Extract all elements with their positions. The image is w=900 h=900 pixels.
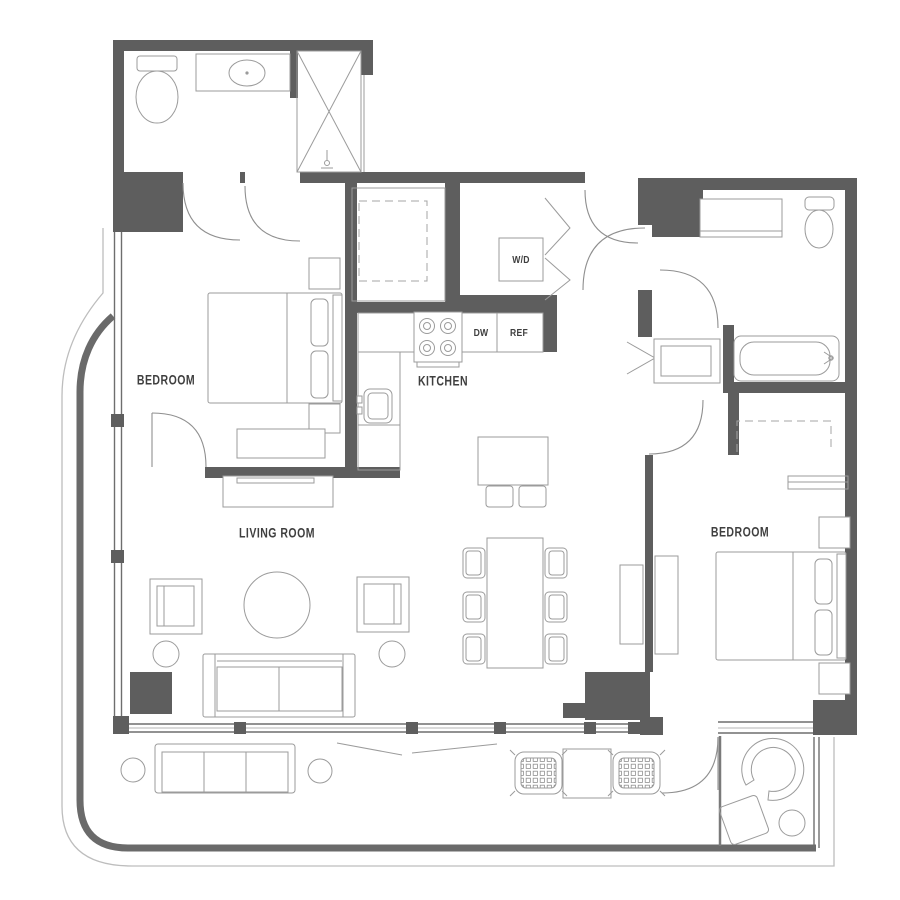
outdoor-side-table <box>779 810 805 836</box>
stool <box>519 486 546 507</box>
bed <box>208 293 342 403</box>
outdoor-sofa <box>155 744 295 793</box>
wicker-chair <box>608 750 665 796</box>
pillow <box>815 559 832 604</box>
side-table <box>153 641 179 667</box>
window-living-south <box>126 724 640 732</box>
label-washer-dryer: W/D <box>512 254 529 266</box>
dining-area <box>463 538 643 668</box>
door-arc-living <box>152 413 206 467</box>
bedroom-right <box>655 421 850 694</box>
tv-console <box>223 476 333 507</box>
outdoor-side-table <box>121 758 145 782</box>
toilet <box>136 71 178 123</box>
coffee-table <box>244 572 310 638</box>
stool <box>486 486 513 507</box>
side-table <box>379 641 405 667</box>
label-dishwasher: DW <box>474 327 489 339</box>
door-arc-bathroom-left <box>183 183 240 240</box>
sofa <box>203 654 355 717</box>
stove <box>414 312 462 367</box>
sideboard <box>620 565 643 644</box>
toilet-tank <box>137 56 177 71</box>
pillow <box>311 351 328 398</box>
bathroom-left <box>136 51 364 172</box>
lounge-chair <box>742 738 804 800</box>
door-arc-bedroom-right <box>649 400 703 454</box>
bathtub <box>734 336 839 381</box>
room-label-bedroom-left: BEDROOM <box>137 373 195 388</box>
wicker-chair <box>510 750 567 796</box>
dresser <box>655 556 678 654</box>
vanity-sink <box>654 339 720 383</box>
nightstand <box>309 258 340 289</box>
bifold-door <box>545 198 570 300</box>
kitchen-sink <box>357 389 392 423</box>
ottoman <box>718 794 769 845</box>
floor-plan: BEDROOM KITCHEN LIVING ROOM BEDROOM W/D … <box>0 0 900 900</box>
headboard <box>333 295 342 401</box>
door-arc-balcony <box>662 737 718 793</box>
kitchen-island <box>478 437 548 507</box>
room-label-kitchen: KITCHEN <box>418 374 468 389</box>
upper-cabinets <box>359 201 427 281</box>
living-room <box>150 476 409 717</box>
bed <box>716 552 846 660</box>
room-label-bedroom-right: BEDROOM <box>711 525 769 540</box>
label-refrigerator: REF <box>510 327 528 339</box>
door-arc-bathroom-right <box>660 270 718 328</box>
floor-plan-drawing <box>0 0 900 900</box>
window-bedroom-south <box>718 722 813 733</box>
room-label-living-room: LIVING ROOM <box>239 526 315 541</box>
toilet-tank <box>805 197 834 210</box>
door-arc-bedroom-left <box>245 186 300 241</box>
shower <box>297 51 364 172</box>
dining-table <box>487 538 543 668</box>
armchair <box>150 579 202 634</box>
pillow <box>815 610 832 655</box>
pantry-counter <box>352 188 445 301</box>
outdoor-side-table <box>308 759 332 783</box>
nightstand <box>819 517 850 548</box>
nightstand <box>819 663 850 694</box>
pillow <box>311 299 328 346</box>
toilet <box>805 210 833 248</box>
armchair <box>357 577 409 632</box>
sliding-door-indicators <box>337 743 497 755</box>
door-arc-hall <box>583 228 645 290</box>
window-left <box>115 232 122 716</box>
outdoor-table <box>563 749 611 798</box>
opening-chevron <box>627 342 655 374</box>
closet <box>737 421 848 489</box>
bench <box>237 429 325 458</box>
headboard <box>837 554 846 658</box>
bedroom-left <box>208 258 342 458</box>
balcony-furniture <box>121 738 805 845</box>
column <box>130 672 172 714</box>
